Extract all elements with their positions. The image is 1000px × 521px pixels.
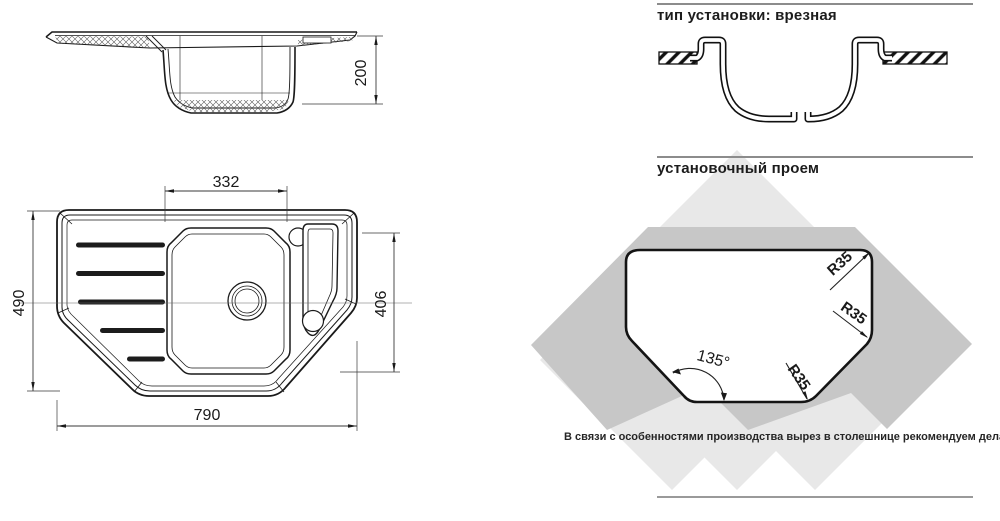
dim-label-332: 332	[213, 174, 240, 191]
countertop-right	[883, 52, 947, 64]
rib	[127, 357, 165, 362]
rib	[78, 300, 165, 305]
cutout-heading: установочный проем	[657, 160, 819, 177]
arrowhead-icon	[392, 363, 395, 372]
install-type-heading: тип установки: врезная	[657, 7, 837, 24]
dimension-depth-200: 200	[302, 36, 383, 104]
arrowhead-icon	[57, 424, 66, 427]
dim-label-200: 200	[353, 60, 370, 87]
small-drain	[303, 311, 324, 332]
arrowhead-icon	[374, 95, 377, 104]
sink-spec-sheet: 200 332	[0, 0, 1000, 521]
production-note: В связи с особенностями производства выр…	[564, 431, 1000, 443]
divider-top	[657, 3, 973, 5]
arrowhead-icon	[374, 36, 377, 45]
arrowhead-icon	[278, 189, 287, 192]
rib	[100, 328, 165, 333]
dimension-depth-490: 490	[11, 211, 60, 391]
arrowhead-icon	[165, 189, 174, 192]
arrowhead-icon	[392, 233, 395, 242]
dim-label-490: 490	[11, 290, 28, 317]
top-view-drawing: 332 490 406 790	[11, 174, 412, 431]
arrowhead-icon	[31, 211, 34, 220]
dim-label-406: 406	[373, 291, 390, 318]
rib	[76, 271, 165, 276]
install-type-cross-section	[659, 40, 947, 119]
rib	[76, 243, 165, 248]
arrowhead-icon	[348, 424, 357, 427]
arrowhead-icon	[31, 382, 34, 391]
dim-label-790: 790	[194, 407, 221, 424]
divider-middle	[657, 156, 973, 158]
side-view-drawing: 200	[46, 32, 383, 113]
divider-bottom	[657, 496, 973, 498]
